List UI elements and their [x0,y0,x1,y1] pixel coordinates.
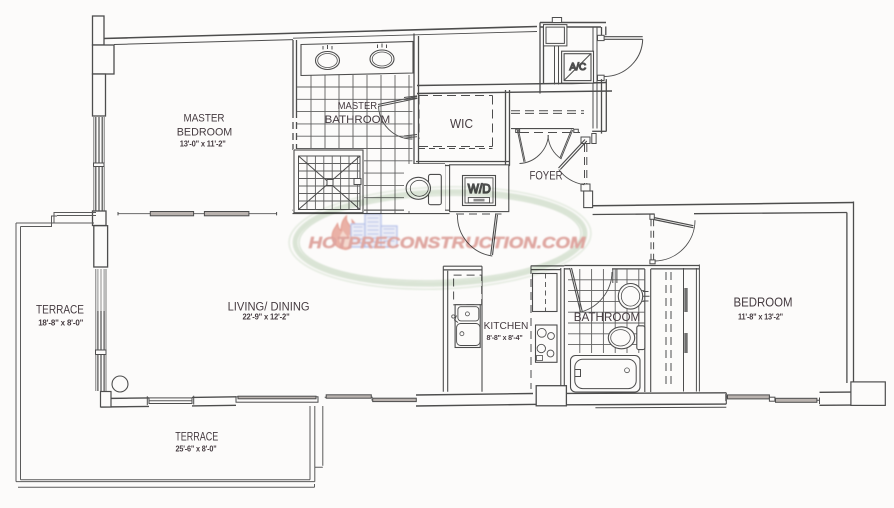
svg-text:MASTER: MASTER [338,100,378,112]
svg-text:BATHROOM: BATHROOM [325,114,391,126]
svg-text:LIVING/ DINING: LIVING/ DINING [228,301,310,313]
svg-text:FOYER: FOYER [530,171,563,183]
svg-text:A/C: A/C [569,62,586,73]
svg-text:TERRACE: TERRACE [175,430,218,444]
svg-text:22'-9" x 12'-2": 22'-9" x 12'-2" [243,313,290,322]
svg-text:KITCHEN: KITCHEN [484,320,529,332]
svg-text:8'-8" x 8'-4": 8'-8" x 8'-4" [487,333,524,342]
svg-text:18'-8" x 8'-0": 18'-8" x 8'-0" [38,318,83,328]
svg-text:TERRACE: TERRACE [36,303,84,317]
svg-text:11'-8" x 13'-2": 11'-8" x 13'-2" [738,312,783,321]
svg-text:BEDROOM: BEDROOM [177,127,233,139]
svg-text:BEDROOM: BEDROOM [734,296,793,310]
svg-text:13'-0" x 11'-2": 13'-0" x 11'-2" [180,139,226,148]
svg-text:WIC: WIC [450,117,473,131]
svg-text:BATHROOM: BATHROOM [574,310,641,324]
svg-text:25'-6" x 8'-0": 25'-6" x 8'-0" [176,443,217,453]
svg-text:HOTPRECONSTRUCTION.COM: HOTPRECONSTRUCTION.COM [309,235,587,252]
svg-text:MASTER: MASTER [184,113,225,125]
